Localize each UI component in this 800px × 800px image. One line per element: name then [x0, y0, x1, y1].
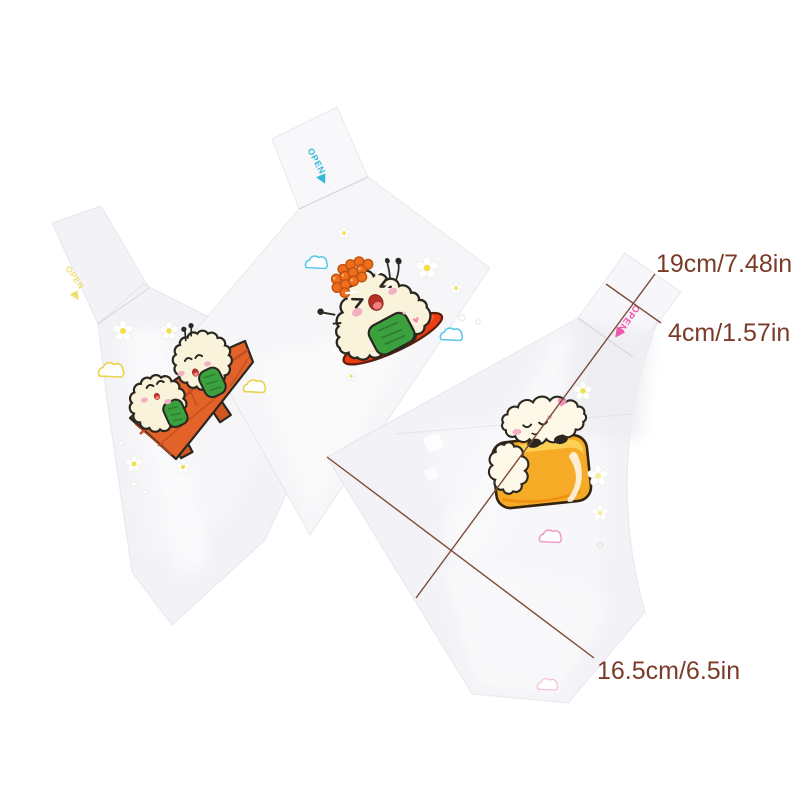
svg-text:16.5cm/6.5in: 16.5cm/6.5in: [597, 657, 740, 685]
svg-text:19cm/7.48in: 19cm/7.48in: [656, 250, 792, 278]
svg-text:4cm/1.57in: 4cm/1.57in: [668, 319, 790, 347]
